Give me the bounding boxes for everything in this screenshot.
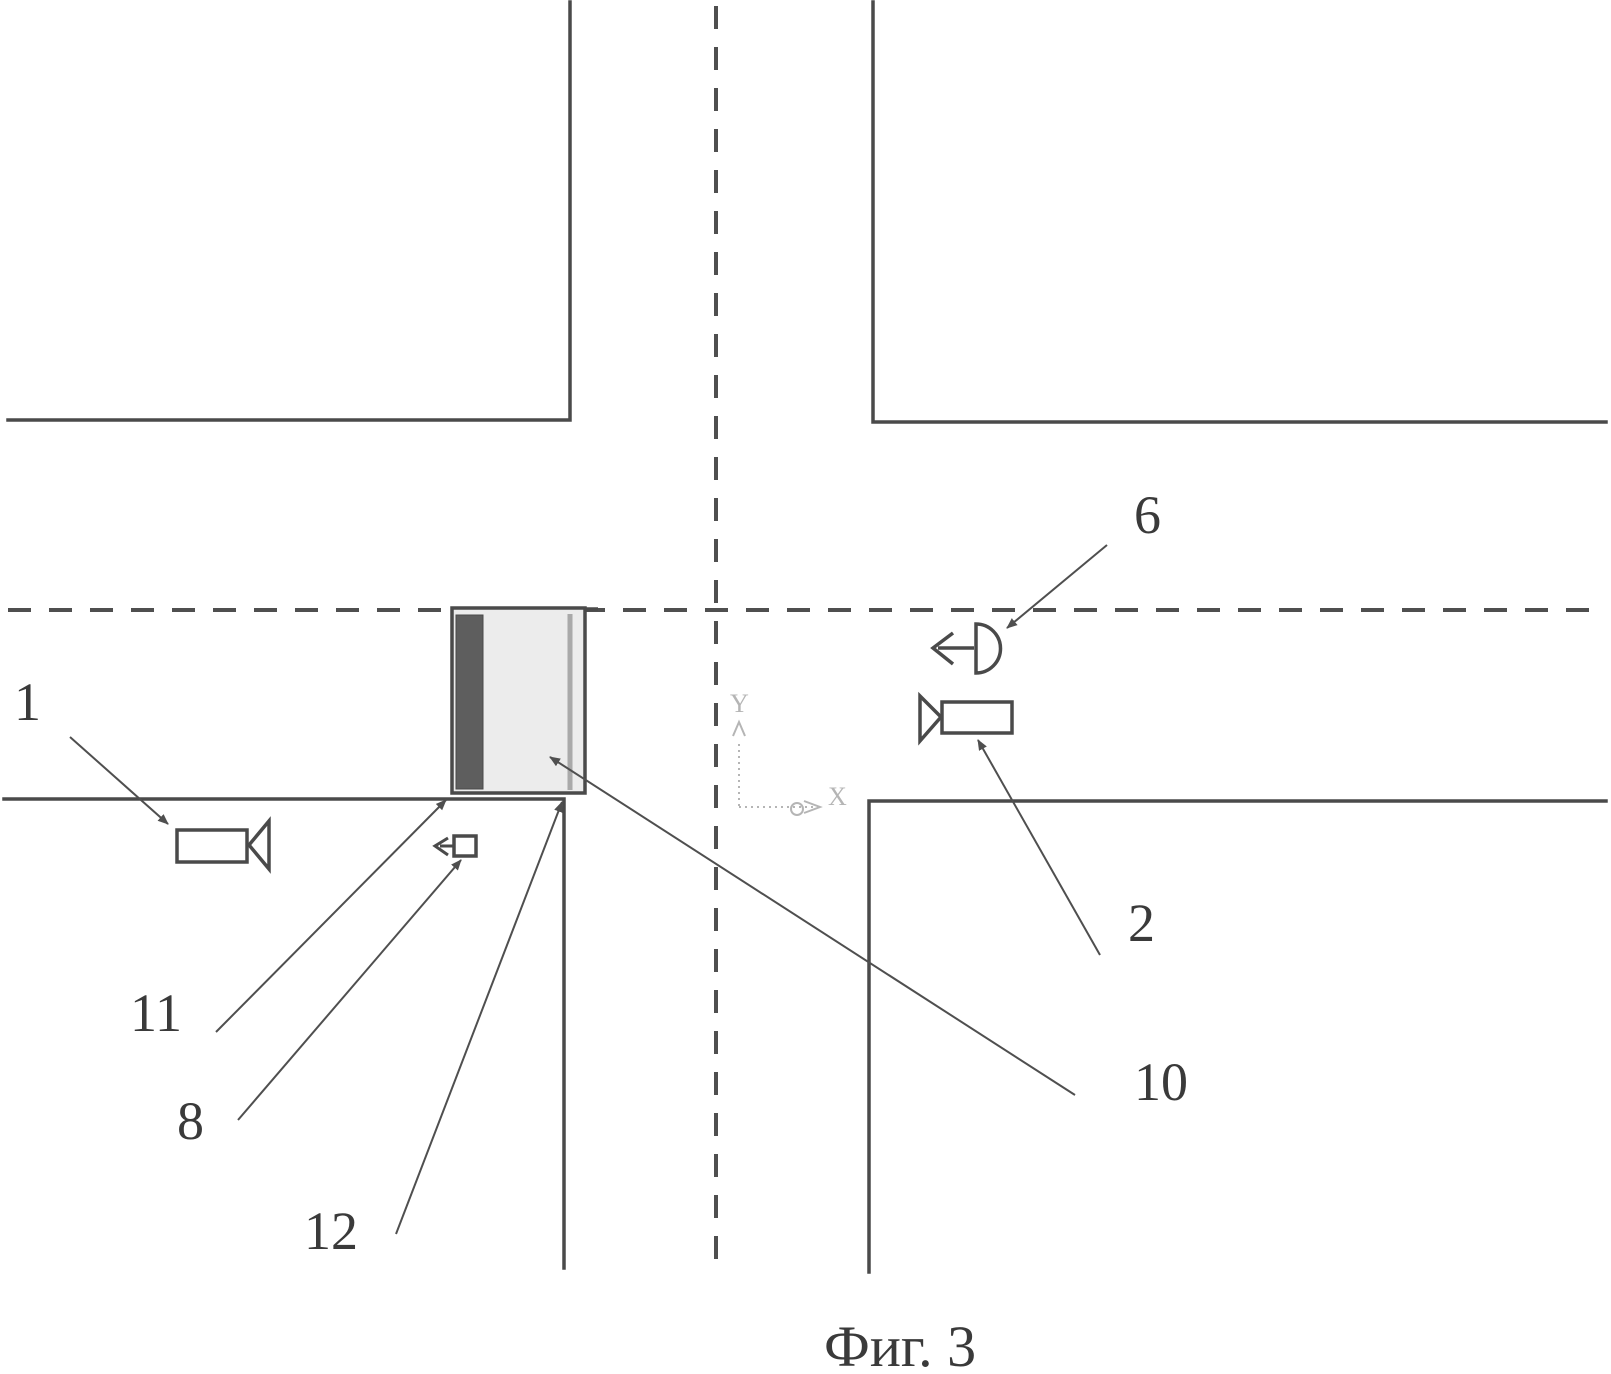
label-11: 11 [130,983,182,1043]
label-12: 12 [304,1201,358,1261]
patent-figure-intersection-diagram: Y X [0,0,1611,1374]
direction-detector-icon-lower [435,836,476,856]
label-10: 10 [1134,1052,1188,1112]
label-1: 1 [14,672,41,732]
road-edge-bottom-right [869,801,1606,1272]
pointer-line-6 [1007,545,1107,628]
direction-detector-icon-upper [933,624,1001,673]
control-zone [452,608,598,793]
road-edge-top-left [8,2,570,420]
road-edges [4,2,1606,1272]
zone-dark-bar [456,615,483,789]
camera-1-body [177,830,247,862]
intersection-diagram-svg: Y X [0,0,1611,1374]
y-axis-label: Y [730,689,749,718]
road-edge-bottom-left [4,799,564,1268]
pointer-line-2 [978,740,1100,955]
pointer-line-12 [396,802,562,1234]
figure-caption: Фиг. 3 [824,1314,976,1374]
numeric-labels: 1 6 2 10 11 8 12 [14,485,1188,1261]
coordinate-axes-icon: Y X [730,689,847,815]
pointer-line-1 [70,737,168,824]
detector-6-halfdisc [976,624,1001,673]
pointer-line-11 [216,800,446,1032]
label-8: 8 [177,1091,204,1151]
detector-8-box [454,836,476,856]
video-camera-icon-left [177,821,269,869]
video-camera-icon-right [920,696,1012,741]
camera-2-body [942,702,1012,733]
camera-2-lens [920,696,941,741]
pointer-line-8 [238,860,461,1120]
y-axis-arrowhead [733,722,745,736]
center-lines [8,6,1602,1262]
camera-1-lens [249,821,269,869]
label-6: 6 [1134,485,1161,545]
road-edge-top-right [873,2,1606,422]
label-2: 2 [1128,893,1155,953]
axes-origin-mark [791,803,803,815]
x-axis-label: X [828,782,847,811]
